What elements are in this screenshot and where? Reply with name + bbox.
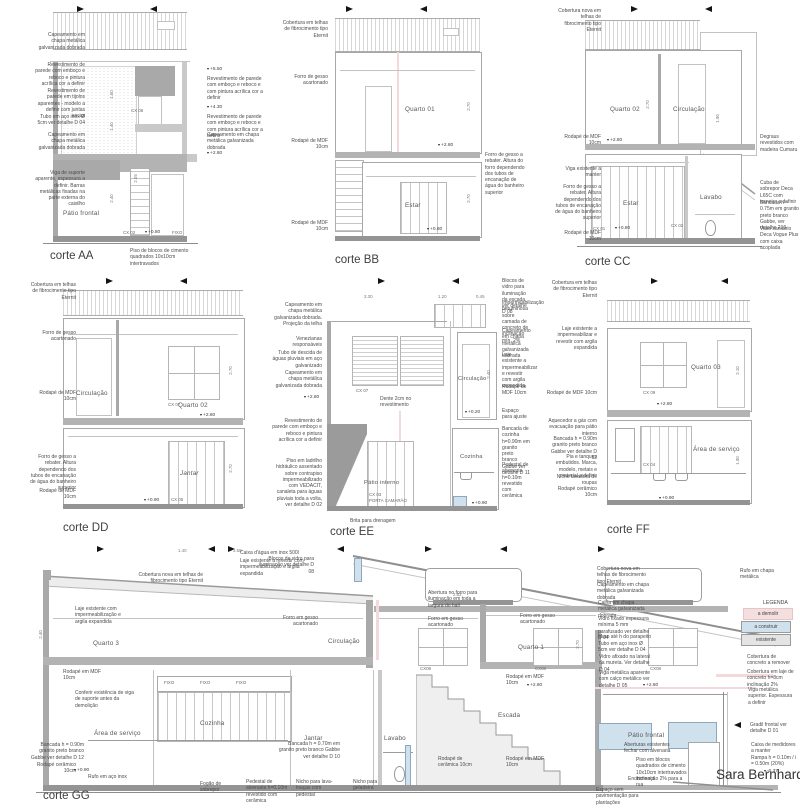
elevation-label: +2.80: [657, 401, 672, 407]
dimension: 2.62: [453, 592, 462, 597]
glass-blocks: [434, 304, 486, 328]
annotation: Rodapé de MDF 10cm: [28, 488, 76, 501]
parapet: [43, 570, 51, 580]
annotation: Forro em gesso acartonado: [520, 613, 566, 626]
annotation: Rodapé cerâmico 10cm: [545, 486, 597, 499]
annotation: Forro de gesso acartonado: [280, 74, 328, 87]
annotation: Piso de blocos de cimento quadrados 10x1…: [130, 248, 200, 267]
dimension: 1.50: [109, 90, 114, 99]
section-title: corte EE: [330, 526, 374, 538]
window-code: CX 02: [671, 223, 683, 228]
elevation-label: +2.80: [438, 142, 453, 148]
dimension: 2.40: [486, 370, 491, 379]
legend-item-construir: a construir: [741, 621, 791, 633]
drawing-sheet: Pátio frontal CX 06 CX 02 FIXO +0.80 1.5…: [0, 0, 800, 812]
ground-line: [577, 246, 762, 247]
annotation: Rodapé de MDF 10cm: [502, 384, 530, 397]
room-label: Pátio frontal: [628, 732, 664, 739]
new-element: [405, 745, 411, 787]
section-title: corte GG: [43, 790, 90, 802]
plinth: [585, 238, 755, 244]
wall: [135, 124, 182, 132]
kitchen-glazing: [157, 692, 292, 742]
room-label: Circulação: [328, 638, 360, 645]
demolish-marker: [376, 600, 379, 660]
window: [418, 628, 468, 666]
dimension: 2.40: [38, 630, 43, 639]
room-label: Circulação: [76, 390, 108, 397]
annotation: Bancada h = 0.70m em granito preto branc…: [278, 741, 340, 760]
door: [365, 86, 392, 152]
section-cut-marker-icon: [452, 278, 459, 284]
room-label: Lavabo: [384, 735, 406, 742]
sink-icon: [675, 474, 688, 481]
glass-block-ridge: [354, 558, 362, 582]
elevation-label: +2.80: [643, 682, 658, 688]
roof-line: [327, 321, 447, 322]
annotation: Nicho para lava-louças com pedestal: [296, 779, 340, 798]
counter-line: [88, 740, 288, 741]
section-corte-ff: CX 09 Quarto 03 +2.80 2.10 CX 04 Área de…: [545, 276, 800, 538]
room-label: Pátio interno: [364, 480, 399, 486]
annotation: Cobertura nova em telhas de fibrocimento…: [123, 572, 203, 585]
annotation: Forro de gesso acartonado: [28, 330, 76, 343]
room-label: Pátio frontal: [63, 210, 99, 217]
annotation: Caixa de medidores a manter: [751, 742, 797, 755]
section-corte-cc: Quarto 02 Circulação +2.80 2.70 1.90 Est…: [555, 4, 800, 274]
section-title: corte DD: [63, 522, 108, 534]
room-outline: [585, 50, 742, 146]
dimension: 2.10: [735, 366, 740, 375]
annotation: Cobertura em telhas de fibrocimento tipo…: [28, 282, 76, 301]
floor-slab: [63, 418, 243, 425]
dimension: 0.45: [476, 294, 485, 299]
annotation: Revestimento de parede com emboço e rebo…: [207, 76, 269, 101]
wall: [480, 604, 486, 668]
annotation: Viga existente a manter: [555, 166, 601, 179]
section-cut-marker-icon: [180, 278, 187, 284]
room-label: Quarto 02: [178, 402, 208, 409]
annotation: Conferir existência de viga de suporte a…: [75, 690, 135, 709]
dimension: 2.40: [109, 194, 114, 203]
dimension: 1.40: [178, 548, 187, 553]
floor-slab: [335, 152, 480, 158]
annotation: Capeamento em chapa metálica galvanizada…: [272, 370, 322, 389]
section-title: corte CC: [585, 256, 630, 268]
ceiling-line: [340, 70, 475, 71]
annotation: Tubo em aço inox Ø 5cm ver detalhe D 04: [35, 114, 85, 127]
dimension: 2.70: [575, 640, 580, 649]
wall-line: [290, 670, 291, 785]
section-title: corte FF: [607, 524, 650, 536]
section-cut-marker-icon: [705, 6, 712, 12]
dimension: 3.30: [364, 294, 373, 299]
section-cut-marker-icon: [721, 278, 728, 284]
annotation: Rodapé de MDF 10cm: [28, 390, 76, 403]
ceiling-line: [589, 162, 689, 163]
elevation-label: +2.80: [207, 150, 222, 156]
section-cut-marker-icon: [631, 6, 638, 12]
annotation: Capeamento em chapa metálica galvanizada…: [35, 32, 85, 51]
wall: [658, 54, 661, 144]
room-outline: [335, 52, 482, 154]
roof-hatch: [63, 290, 243, 316]
annotation: Rodapé de MDF 10cm: [545, 390, 597, 396]
annotation: Forro em gesso acartonado: [428, 616, 474, 629]
wall: [182, 62, 187, 156]
roof-vent: [443, 28, 459, 36]
annotation: Viga metálica superior. Espessura a defi…: [748, 687, 796, 706]
section-cut-marker-icon: [420, 6, 427, 12]
ledge: [187, 154, 197, 162]
section-corte-gg: 1.40 3.58: [28, 542, 800, 812]
louver-window: [400, 336, 444, 386]
dimension: 1.20: [438, 294, 447, 299]
annotation: Rodapé de MDF 10cm: [555, 134, 601, 147]
annotation: Forro de gesso a rebater. Altura depende…: [555, 184, 601, 222]
annotation: Dente 2cm no revestimento: [380, 396, 430, 409]
legend-item-existente: existente: [741, 634, 791, 646]
room-outline: [151, 174, 184, 236]
window-code: CX 09: [643, 390, 655, 395]
dimension: 2.70: [466, 102, 471, 111]
roof-line: [353, 556, 776, 638]
legend-item-demolir: a demolir: [743, 608, 793, 620]
section-cut-marker-icon: [378, 278, 385, 284]
annotation: Laje existente com impermeabilização e a…: [75, 606, 133, 625]
annotation: Aquecedor a gás com evacuação para pátio…: [545, 418, 597, 437]
beam-line: [603, 694, 728, 695]
annotation: Cobertura nova em telhas de fibrocimento…: [555, 8, 601, 33]
toilet-icon: [394, 766, 405, 782]
annotation: Nicho para geladeira: [353, 779, 393, 792]
fixed-glass-code: FIXO: [164, 680, 174, 685]
annotation: Bancada h = 0.90m granito preto branco G…: [28, 742, 84, 761]
sink-icon: [653, 474, 666, 481]
annotation: Laje existente a impermeabilizar e reves…: [545, 326, 597, 351]
elevation-label: +2.80: [527, 682, 542, 688]
annotation: Blocos de vidro para iluminação ver deta…: [258, 556, 314, 575]
room-label: Quarto 3: [93, 640, 119, 647]
roof-hatch: [585, 20, 700, 50]
window-code: CX 07: [356, 388, 368, 393]
dimension: 1.40: [109, 122, 114, 131]
annotation: Forro de gesso a rebater. Altura depende…: [28, 454, 76, 492]
wall: [327, 321, 331, 426]
annotation: Brita para drenagem: [350, 518, 400, 524]
legend-title: LEGENDA: [763, 600, 788, 606]
section-corte-bb: Quarto 01 +2.80 2.70 Estar +0.80 2.70 Co…: [280, 4, 525, 272]
annotation: Forro em gesso acartonado: [268, 615, 318, 628]
window-code: CX 04: [643, 462, 655, 467]
elevation-label: +0.90: [144, 497, 159, 503]
annotation: Cobertura em telhas de fibrocimento tipo…: [280, 20, 328, 39]
window-code: PORTA CAMARÃO: [369, 498, 407, 503]
section-cut-marker-icon: [337, 546, 344, 552]
plinth: [607, 500, 750, 505]
plinth: [53, 236, 187, 242]
window-code: CX 03: [369, 492, 381, 497]
fixed-glass-code: FIXO: [236, 680, 246, 685]
water-heater: [615, 428, 635, 462]
section-title: corte AA: [50, 250, 93, 262]
annotation: Capeamento em chapa metálica galvanizada…: [597, 582, 652, 601]
wall-line: [373, 670, 374, 785]
wall: [116, 320, 119, 416]
window-code: CX 07: [168, 402, 180, 407]
annotation: Rodapé de cerâmica 10cm: [438, 756, 484, 769]
roof-fill: [43, 576, 373, 604]
room-label: Quarto 01: [405, 106, 435, 113]
counter-line: [695, 214, 735, 215]
room-label: Circulação: [458, 376, 486, 382]
ceiling-line: [68, 334, 238, 335]
annotation: Rampa h = 0.10m / i = 0.50m (20%): [751, 755, 797, 768]
annotation: Espaço sem pavimentação para plantações: [596, 787, 652, 806]
annotation: Piso em blocos quadrados de cimento 10x1…: [636, 757, 690, 788]
elevation-label: +2.80: [304, 394, 319, 400]
room-label: Área de serviço: [94, 730, 141, 737]
ground-line: [43, 243, 198, 244]
louver-window: [352, 336, 398, 386]
wall: [135, 66, 175, 96]
section-corte-dd: Circulação Quarto 02 CX 07 +2.80 2.70 Ja…: [28, 276, 283, 534]
sink-icon: [460, 473, 472, 480]
elevation-label: +2.80: [607, 137, 622, 143]
section-cut-marker-icon: [106, 278, 113, 284]
annotation: Venezianas responsáveis: [272, 336, 322, 349]
annotation: Revestimento de parede com emboço e rebo…: [35, 62, 85, 87]
room-label: Cozinha: [200, 720, 225, 727]
section-title: corte BB: [335, 254, 379, 266]
window: [648, 628, 698, 666]
annotation: Cobertura em telhas de fibrocimento tipo…: [545, 280, 597, 299]
annotation: Rodapé em MDF 10cm: [506, 756, 552, 769]
ceiling-line: [366, 176, 476, 177]
dimension: 1.90: [715, 114, 720, 123]
section-cut-marker-icon: [734, 722, 741, 728]
toilet-icon: [705, 220, 716, 236]
annotation: Rufo em chapa metálica: [740, 568, 792, 581]
room-label: Estar: [405, 202, 421, 209]
annotation: Cobertura em laje de concreto h=8cm incl…: [747, 669, 795, 688]
annotation: Rodapé de MDF 10cm: [280, 138, 328, 151]
section-corte-ee: 3.30 1.20 0.45 CX 07 Circulação +0.20 2.…: [272, 276, 530, 538]
annotation: Rufo em aço inox: [88, 774, 138, 780]
ceiling-line: [68, 436, 238, 437]
dimension: 1.90: [735, 456, 740, 465]
annotation: Viga de suporte aparente, espessura a de…: [35, 170, 85, 208]
section-corte-aa: Pátio frontal CX 06 CX 02 FIXO +0.80 1.5…: [35, 4, 275, 272]
room-label: Escada: [498, 712, 520, 719]
plinth: [327, 506, 497, 511]
section-cut-marker-icon: [346, 6, 353, 12]
dimension: 2.05: [133, 174, 138, 183]
annotation: Tubo em aço inox Ø 5cm ver detalhe D 04: [598, 641, 653, 654]
wall: [685, 156, 688, 240]
room-label: Quarto 02: [610, 106, 640, 113]
annotation: Rodapé de MDF 10cm: [280, 220, 328, 233]
elevation-label: +0.80: [615, 225, 630, 231]
fixed-glass-code: FIXO: [200, 680, 210, 685]
elevation-label: +5.50: [207, 66, 222, 72]
elevation-label: +0.80: [145, 229, 160, 235]
wall-fill: [327, 424, 367, 508]
room-label: Jantar: [180, 470, 199, 477]
demolish-marker: [397, 52, 399, 152]
annotation: Capeamento em chapa metálica galvanizada…: [207, 132, 262, 151]
roof-hatch: [607, 300, 750, 322]
elevation-label: +0.80: [427, 226, 442, 232]
roof-vent: [157, 21, 175, 30]
ground-line: [36, 792, 781, 793]
elevation-label: +0.20: [465, 409, 480, 415]
annotation: Forro de gesso a rebater. Altura do forr…: [485, 152, 525, 196]
annotation: Piso em ladrilho hidráulico assentado so…: [272, 458, 322, 508]
window: [168, 346, 220, 400]
annotation: Pedestal de alvenaria h=0.10m revestido …: [502, 462, 530, 500]
window-code: FIXO: [172, 230, 182, 235]
upper-cabinet: [157, 676, 292, 692]
annotation: Capeamento em chapa metálica galvanizada…: [35, 132, 85, 151]
pipe-line: [450, 321, 451, 506]
annotation: Cobertura de concreto a remover: [747, 654, 795, 667]
window: [640, 342, 687, 388]
annotation: Revestimento de parede com emboço e rebo…: [272, 418, 322, 443]
wall: [378, 670, 382, 785]
dimension: 2.70: [645, 100, 650, 109]
wall-line: [153, 670, 154, 785]
door: [678, 64, 706, 144]
annotation: Rodapé cerâmico 10cm: [28, 762, 76, 775]
window-code: CX 06: [131, 108, 143, 113]
annotation: Gradil frontal ver detalhe D 01: [750, 722, 796, 735]
room-label: Área de serviço: [693, 446, 740, 453]
annotation: Rodapé em MDF 10cm: [63, 669, 113, 682]
room-label: Lavabo: [700, 194, 722, 201]
floor-slab: [607, 410, 750, 417]
plinth: [63, 504, 243, 509]
annotation: Fogão de sobrepor: [200, 781, 242, 794]
annotation: Vaso sanitário Deca Vogue Plus com caixa…: [760, 226, 800, 251]
stair-steps: [416, 675, 560, 787]
elevation-label: +0.90: [74, 767, 89, 773]
annotation: Tubo de descida de águas pluviais em aço…: [272, 350, 322, 369]
dimension: 2.70: [466, 194, 471, 203]
annotation: Muro até h do parapeito: [598, 634, 653, 640]
annotation: Espaço para ajuste: [502, 408, 530, 421]
annotation: Nicho lavadora de roupas: [545, 474, 597, 487]
window-code: CX 05: [171, 497, 183, 502]
plinth: [335, 236, 480, 241]
section-cut-marker-icon: [97, 546, 104, 552]
project-title: Sara Bernhardt: [716, 767, 800, 782]
annotation: Rodapé de MDF 10cm: [555, 230, 601, 243]
section-cut-marker-icon: [651, 278, 658, 284]
annotation: Capeamento em chapa metálica galvanizada…: [272, 302, 322, 327]
dimension: 2.70: [228, 464, 233, 473]
door: [76, 338, 112, 416]
window-code: CX 02: [123, 230, 135, 235]
room-label: Cozinha: [460, 454, 483, 460]
annotation: Degraus revestidos com madeira Cumaru: [760, 134, 800, 153]
floor-slab: [43, 657, 373, 665]
stairs: [335, 160, 364, 232]
annotation: Aberturas existentes fechar com alvenari…: [624, 742, 676, 755]
room-label: Circulação: [673, 106, 705, 113]
section-cut-marker-icon: [208, 546, 215, 552]
elevation-label: +4.30: [207, 104, 222, 110]
room-label: Quarto 03: [691, 364, 721, 371]
door: [717, 340, 745, 408]
annotation: Pedestal de alvenaria h=0.10m revestido …: [246, 779, 292, 804]
dimension: 2.70: [228, 366, 233, 375]
room-label: Estar: [623, 200, 639, 207]
room-label: Quarto 1: [518, 644, 544, 651]
